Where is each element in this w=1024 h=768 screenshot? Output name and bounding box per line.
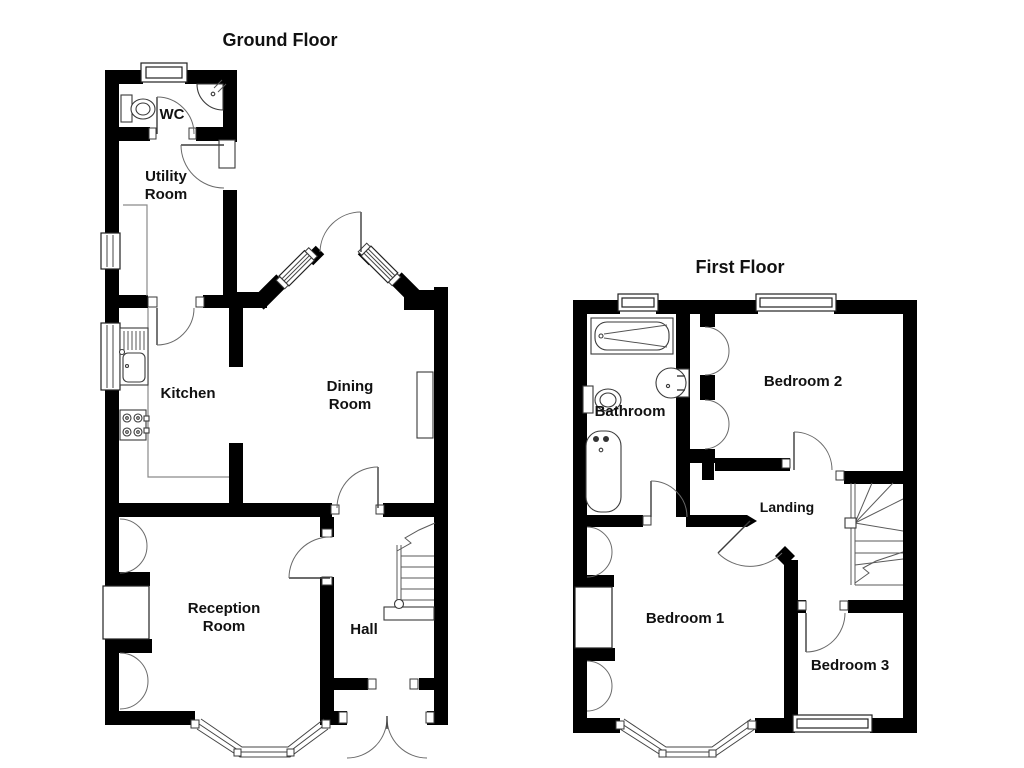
room-label-bathroom: Bathroom	[595, 403, 666, 420]
radiator	[417, 372, 433, 438]
room-label-hall: Hall	[350, 621, 378, 638]
door-jamb	[196, 297, 204, 307]
staircase-ground	[384, 523, 435, 620]
wall	[870, 718, 917, 733]
wall	[105, 295, 148, 308]
room-label-reception-1: Reception	[188, 600, 261, 617]
door-jamb	[426, 712, 434, 723]
room-label-kitchen: Kitchen	[160, 385, 215, 402]
wall	[320, 577, 334, 725]
wall	[587, 515, 643, 527]
wall	[334, 678, 368, 690]
wall	[105, 503, 332, 517]
toilet-icon	[121, 95, 155, 122]
wall	[105, 70, 143, 84]
first-floor-plan: First Floor	[573, 257, 917, 757]
wall	[676, 463, 690, 517]
wall	[105, 711, 195, 725]
bay-window-angled	[358, 243, 402, 287]
door-jamb	[339, 712, 347, 723]
room-label-dining-1: Dining	[327, 378, 374, 395]
door-jamb	[836, 471, 844, 480]
room-label-bedroom3: Bedroom 3	[811, 657, 889, 674]
staircase-first	[845, 483, 903, 585]
bedroom2-door	[794, 432, 832, 470]
door-jamb	[148, 297, 157, 307]
front-double-door	[347, 716, 427, 758]
wall	[685, 449, 715, 463]
wall	[119, 639, 152, 653]
wall	[573, 718, 620, 733]
window	[618, 294, 658, 311]
wall	[119, 127, 150, 141]
floorplan-page: Ground Floor	[0, 0, 1024, 768]
ground-floor-title: Ground Floor	[223, 30, 338, 50]
wall	[229, 295, 243, 367]
wall	[903, 300, 917, 733]
wall	[844, 471, 903, 484]
bay-window-angled	[276, 247, 318, 289]
door-jamb	[376, 505, 384, 514]
room-label-landing: Landing	[760, 499, 814, 515]
door-jamb	[149, 128, 156, 139]
room-label-dining-2: Room	[329, 396, 372, 413]
door-jamb	[322, 529, 332, 537]
door-jamb	[840, 601, 848, 610]
hob-icon	[120, 410, 149, 440]
wall	[223, 190, 237, 298]
wall-angled	[258, 280, 282, 304]
kitchen-sink-icon	[120, 328, 149, 385]
bedroom1-door	[718, 521, 782, 566]
bath-vertical-icon	[586, 431, 621, 512]
wall	[848, 600, 903, 613]
window	[101, 323, 120, 390]
wall	[573, 300, 587, 733]
wall	[419, 678, 434, 690]
wall	[784, 560, 798, 718]
wall	[700, 375, 715, 400]
room-label-wc: WC	[160, 106, 185, 123]
ground-floor-plan: Ground Floor	[101, 30, 448, 758]
wall	[434, 287, 448, 725]
bay-window	[616, 719, 756, 757]
chimney-recess	[103, 586, 149, 639]
first-floor-title: First Floor	[696, 257, 785, 277]
wall	[686, 515, 747, 527]
door-jamb	[782, 459, 790, 468]
wall	[196, 127, 223, 141]
floorplan-drawing: Ground Floor	[0, 0, 1024, 768]
window	[101, 233, 120, 269]
door-jamb	[331, 505, 339, 514]
utility-external-door	[181, 140, 235, 188]
utility-counter	[123, 205, 147, 296]
wall-angled	[396, 278, 414, 296]
chimney-recess	[575, 587, 612, 648]
window	[756, 294, 836, 311]
wall	[700, 314, 715, 327]
wall	[223, 70, 237, 142]
corner-basin-icon	[197, 80, 226, 110]
ground-floor-fixtures	[120, 80, 436, 620]
wall	[119, 572, 150, 586]
bay-window	[191, 719, 330, 757]
reception-door	[289, 537, 330, 578]
wall	[715, 458, 790, 471]
room-label-bedroom2: Bedroom 2	[764, 373, 842, 390]
door-jamb	[368, 679, 376, 689]
wall	[573, 300, 620, 314]
wall	[702, 463, 714, 480]
dining-hall-door	[337, 467, 378, 508]
door-jamb	[643, 516, 651, 525]
door-jamb	[410, 679, 418, 689]
dining-bay-door	[320, 212, 361, 252]
bedroom3-door	[806, 613, 845, 652]
kitchen-door	[157, 308, 194, 345]
wall	[587, 648, 615, 661]
first-floor-fixtures	[583, 318, 903, 585]
basin-icon	[656, 368, 689, 398]
window	[793, 715, 872, 732]
door-jamb	[798, 601, 806, 610]
door-jamb	[189, 128, 196, 139]
room-label-utility-1: Utility	[145, 168, 187, 185]
room-label-bedroom1: Bedroom 1	[646, 610, 724, 627]
ground-floor-door-jambs	[148, 128, 434, 723]
room-label-utility-2: Room	[145, 186, 188, 203]
wall	[656, 300, 758, 314]
window	[141, 63, 187, 82]
wall-mitre	[747, 515, 757, 527]
bath-icon	[591, 318, 673, 354]
first-floor-door-jambs	[643, 459, 848, 610]
room-label-reception-2: Room	[203, 618, 246, 635]
ground-floor-labels: WC Utility Room Kitchen Dining Room Rece…	[145, 106, 378, 638]
wall	[755, 718, 795, 733]
